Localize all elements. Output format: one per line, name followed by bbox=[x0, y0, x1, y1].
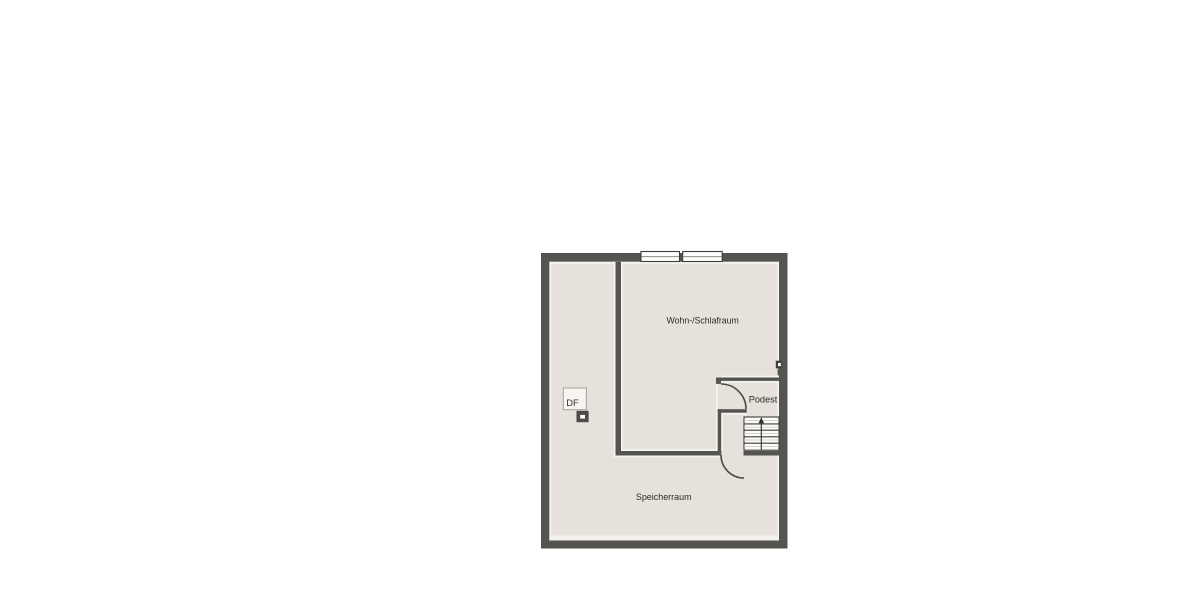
svg-text:Wohn-/Schlafraum: Wohn-/Schlafraum bbox=[667, 316, 739, 326]
svg-text:DF: DF bbox=[566, 397, 579, 408]
svg-text:Speicherraum: Speicherraum bbox=[636, 492, 692, 502]
svg-text:Podest: Podest bbox=[749, 395, 778, 405]
